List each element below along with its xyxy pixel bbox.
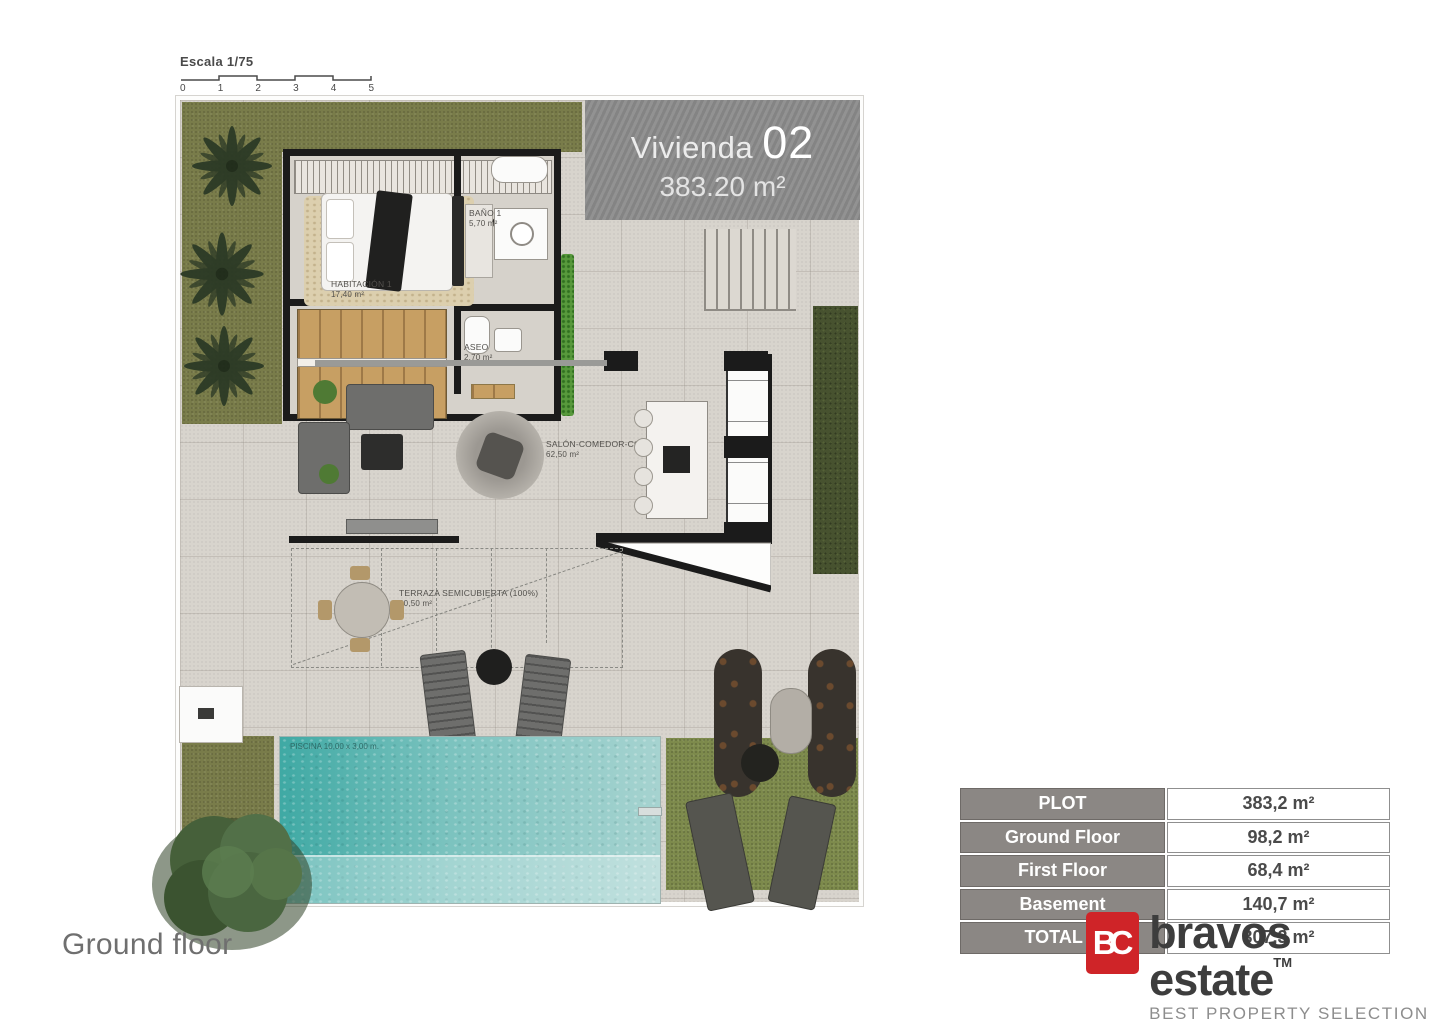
brand-logo: BC bravos estateTM BEST PROPERTY SELECTI… (1086, 912, 1440, 1019)
scale-ruler-icon (180, 72, 376, 82)
floor-plan: Vivienda 02 383.20 m² HABITACIÓN 1 17,40… (175, 95, 864, 907)
project-banner: Vivienda 02 383.20 m² (585, 100, 860, 220)
dining-chair (390, 600, 404, 620)
palm-tree-icon (184, 118, 280, 214)
scale-tick: 0 (180, 83, 186, 94)
room-label-bano: BAÑO 1 5,70 m² (469, 208, 501, 229)
table-row-label: First Floor (960, 855, 1165, 887)
palm-tree-icon (176, 318, 272, 414)
dining-chair (318, 600, 332, 620)
wall-block (724, 436, 768, 458)
plant-pot (313, 380, 337, 404)
terrace-grid-line (546, 548, 547, 643)
room-label-terraza: TERRAZA SEMICUBIERTA (100%) 20,50 m² (399, 588, 538, 609)
table-row-value: 68,4 m² (1167, 855, 1390, 887)
dining-chair (350, 638, 370, 652)
side-table (741, 744, 779, 782)
pillow (326, 199, 354, 239)
entry-stairs (704, 229, 796, 311)
scale-label: Escala 1/75 (180, 54, 380, 69)
scale-tick: 2 (255, 83, 261, 94)
scale-bar: Escala 1/75 0 1 2 3 4 5 (180, 54, 380, 94)
sofa (346, 384, 434, 430)
side-table (476, 649, 512, 685)
aseo-sink (494, 328, 522, 352)
dining-table (334, 582, 390, 638)
stool (634, 409, 653, 428)
scale-tick: 5 (368, 83, 374, 94)
basin (510, 222, 534, 246)
doormat (471, 384, 515, 399)
pillow (326, 242, 354, 282)
pool-label: PISCINA 10,00 x 3,00 m. (290, 742, 379, 751)
table-row-value: 383,2 m² (1167, 788, 1390, 820)
table-row-label: PLOT (960, 788, 1165, 820)
shower-icon (198, 708, 214, 719)
tv-bench (346, 519, 438, 534)
pool-ladder (638, 807, 662, 816)
plant-pot (319, 464, 339, 484)
table-row-value: 98,2 m² (1167, 822, 1390, 854)
banner-number: 02 (762, 117, 814, 168)
banner-title: Vivienda (631, 130, 753, 165)
brand-monogram-icon: BC (1086, 912, 1139, 974)
wall-block (724, 351, 768, 371)
bathtub (491, 156, 548, 183)
stool (634, 438, 653, 457)
coffee-table (361, 434, 403, 470)
stool (634, 467, 653, 486)
cooktop (663, 446, 690, 473)
stool (634, 496, 653, 515)
banner-area: 383.20 m² (585, 171, 860, 203)
brand-name: bravos estate (1149, 907, 1291, 1005)
plant-wall (561, 254, 574, 416)
hedge-strip (813, 306, 858, 574)
beam (315, 360, 607, 366)
bed-bench (452, 196, 464, 286)
page: Escala 1/75 0 1 2 3 4 5 (0, 0, 1440, 1019)
scale-tick: 3 (293, 83, 299, 94)
scale-tick: 1 (218, 83, 224, 94)
terrace-wall (289, 536, 459, 543)
armchair (298, 422, 350, 494)
room-label-habitacion: HABITACIÓN 1 17,40 m² (331, 279, 392, 300)
trademark-symbol: TM (1273, 955, 1292, 970)
dining-chair (350, 566, 370, 580)
wall-corner (604, 351, 638, 371)
scale-tick: 4 (331, 83, 337, 94)
scale-ticks: 0 1 2 3 4 5 (180, 83, 374, 94)
padded-lounger (808, 649, 856, 797)
floor-name-label: Ground floor (62, 928, 232, 962)
brand-tagline: BEST PROPERTY SELECTION (1149, 1004, 1440, 1019)
table-row-label: Ground Floor (960, 822, 1165, 854)
palm-tree-icon (172, 224, 272, 324)
stone-table (770, 688, 812, 754)
